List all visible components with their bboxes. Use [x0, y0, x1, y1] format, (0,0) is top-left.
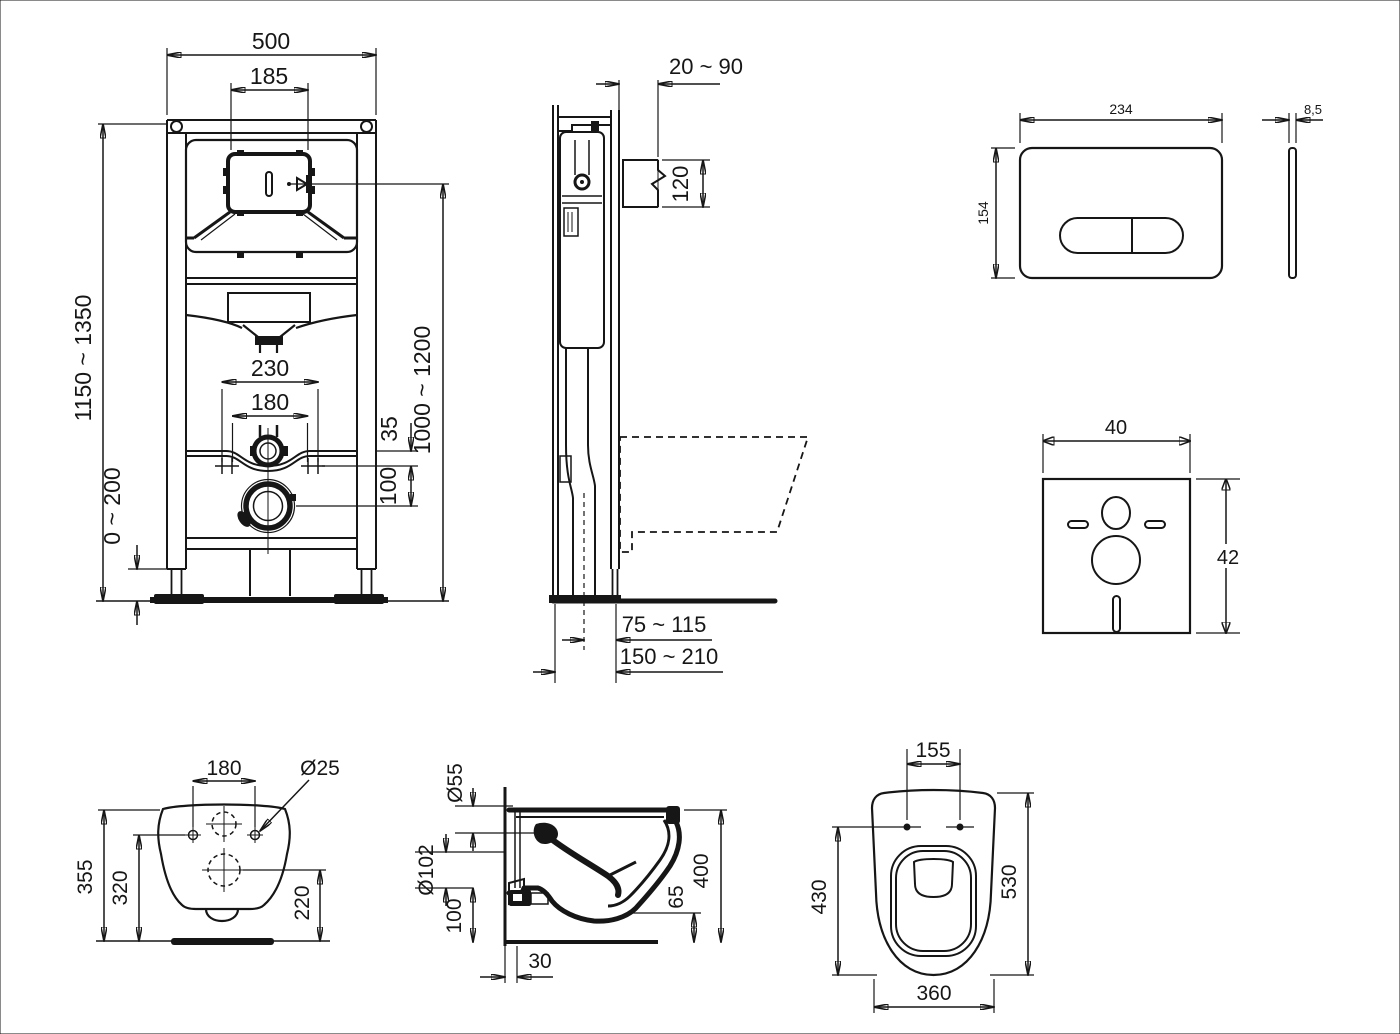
mat-top-hole	[1102, 497, 1130, 529]
floor-bar-rear	[171, 938, 274, 945]
water-spot	[914, 859, 953, 897]
dim-label-o102: Ø102	[415, 844, 438, 895]
installation-drawing: 500 185 1150 ~ 1350 1000 ~ 1200 230	[0, 0, 1400, 1034]
dim-label-320: 320	[109, 870, 132, 905]
flush-bend	[186, 293, 357, 554]
dim-label-o25: Ø25	[300, 757, 340, 780]
dim-label-0-200: 0 ~ 200	[99, 467, 125, 544]
dim-label-75-115: 75 ~ 115	[622, 612, 707, 637]
dim-label-220: 220	[291, 885, 314, 920]
dim-label-42: 42	[1217, 547, 1239, 569]
dim-outlet-diameter: Ø102	[415, 834, 505, 906]
dim-label-8-5: 8,5	[1304, 102, 1322, 117]
bowl-inner-rim	[896, 851, 971, 951]
dim-fixing-inner: 180	[233, 389, 308, 462]
dim-plate-width: 234	[1020, 101, 1222, 143]
pan-outlet-bump	[206, 909, 238, 921]
dim-seat-hole-spacing: 155	[907, 739, 960, 820]
dim-wall-gap: 30	[480, 946, 553, 983]
dim-label-500: 500	[252, 28, 290, 54]
technical-drawing-canvas: 500 185 1150 ~ 1350 1000 ~ 1200 230	[0, 0, 1400, 1034]
dim-label-355: 355	[74, 859, 97, 894]
pan-top-view: 155 430 530 360	[808, 739, 1034, 1013]
cistern-side	[560, 132, 604, 348]
dim-plate-height: 154	[975, 148, 1015, 278]
dim-label-155: 155	[915, 739, 950, 762]
dim-rail-offset: 35	[322, 416, 418, 466]
dim-label-30: 30	[528, 950, 551, 973]
dim-label-154: 154	[975, 201, 991, 225]
dim-label-o55: Ø55	[444, 763, 467, 803]
dim-front-bottom-height: 65	[632, 885, 701, 942]
wall-line	[553, 105, 558, 601]
frame-front-view: 500 185 1150 ~ 1350 1000 ~ 1200 230	[70, 28, 449, 625]
flush-button	[1060, 218, 1183, 253]
dim-label-65: 65	[665, 885, 688, 908]
dim-pan-total-depth: 530	[990, 793, 1034, 975]
outlet-dashed-circle	[202, 848, 246, 892]
cistern	[186, 140, 357, 258]
mat-outlet-hole	[1092, 536, 1140, 584]
dim-label-40: 40	[1105, 417, 1127, 439]
dim-label-234: 234	[1109, 101, 1133, 117]
dim-pan-depth: 400	[684, 810, 727, 942]
flush-rod-slot	[266, 172, 272, 196]
dim-label-120: 120	[668, 166, 693, 203]
seat-fixing-holes	[893, 824, 974, 831]
dim-label-360: 360	[916, 982, 951, 1005]
dim-hole-to-front: 430	[808, 827, 893, 975]
dim-label-20-90: 20 ~ 90	[669, 54, 743, 79]
dim-plate-thickness: 8,5	[1262, 102, 1323, 143]
mat-bottom-slot	[1113, 596, 1120, 632]
flush-plate-side	[1289, 148, 1296, 278]
dim-label-100-pan: 100	[443, 898, 466, 933]
dim-label-230: 230	[251, 355, 289, 381]
bowl-outer-rim	[891, 846, 976, 956]
frame-side-view: 20 ~ 90 120 75 ~ 115 150 ~ 210	[533, 54, 808, 683]
mat-left-slot	[1068, 521, 1088, 528]
dim-label-180: 180	[251, 389, 289, 415]
dim-hole-height: 320	[109, 835, 185, 941]
dim-pan-width: 360	[874, 979, 994, 1013]
dim-connector-height: 120	[662, 160, 710, 207]
dim-label-185: 185	[250, 63, 288, 89]
pan-outline-dashed	[620, 437, 808, 552]
dim-service-opening: 185	[231, 63, 308, 150]
dim-mat-width: 40	[1043, 417, 1190, 473]
dim-label-100: 100	[375, 467, 401, 505]
dim-label-150-210: 150 ~ 210	[620, 644, 718, 669]
dim-label-400: 400	[690, 853, 713, 888]
flush-plate-body	[1020, 148, 1222, 278]
dim-label-430: 430	[808, 879, 831, 914]
pan-side-view: Ø55 Ø102 100 30 65 400	[415, 763, 727, 983]
dim-outlet-height: 220	[243, 870, 326, 941]
flush-pipe-side	[560, 348, 595, 650]
dim-outlet-bottom-height: 100	[443, 888, 473, 942]
sound-mat-body	[1043, 479, 1190, 633]
wall-connector-rod	[623, 160, 665, 207]
pan-rear-view: 180 Ø25 355 320 220	[74, 757, 340, 945]
flush-plate-view: 234 154 8,5	[975, 101, 1323, 278]
dim-label-35: 35	[376, 416, 402, 442]
dim-inlet-diameter: Ø55	[444, 763, 540, 851]
inlet-dashed-circle	[206, 806, 242, 842]
dim-label-1000-1200: 1000 ~ 1200	[409, 326, 435, 455]
mat-right-slot	[1145, 521, 1165, 528]
sound-mat-view: 40 42	[1043, 417, 1240, 633]
pan-side-profile	[509, 806, 680, 921]
dim-label-1150-1350: 1150 ~ 1350	[70, 295, 96, 422]
dim-hole-diameter: Ø25	[260, 757, 340, 831]
dim-label-530: 530	[998, 864, 1021, 899]
dim-label-180-rear: 180	[206, 757, 241, 780]
dim-mat-height: 42	[1196, 479, 1240, 633]
